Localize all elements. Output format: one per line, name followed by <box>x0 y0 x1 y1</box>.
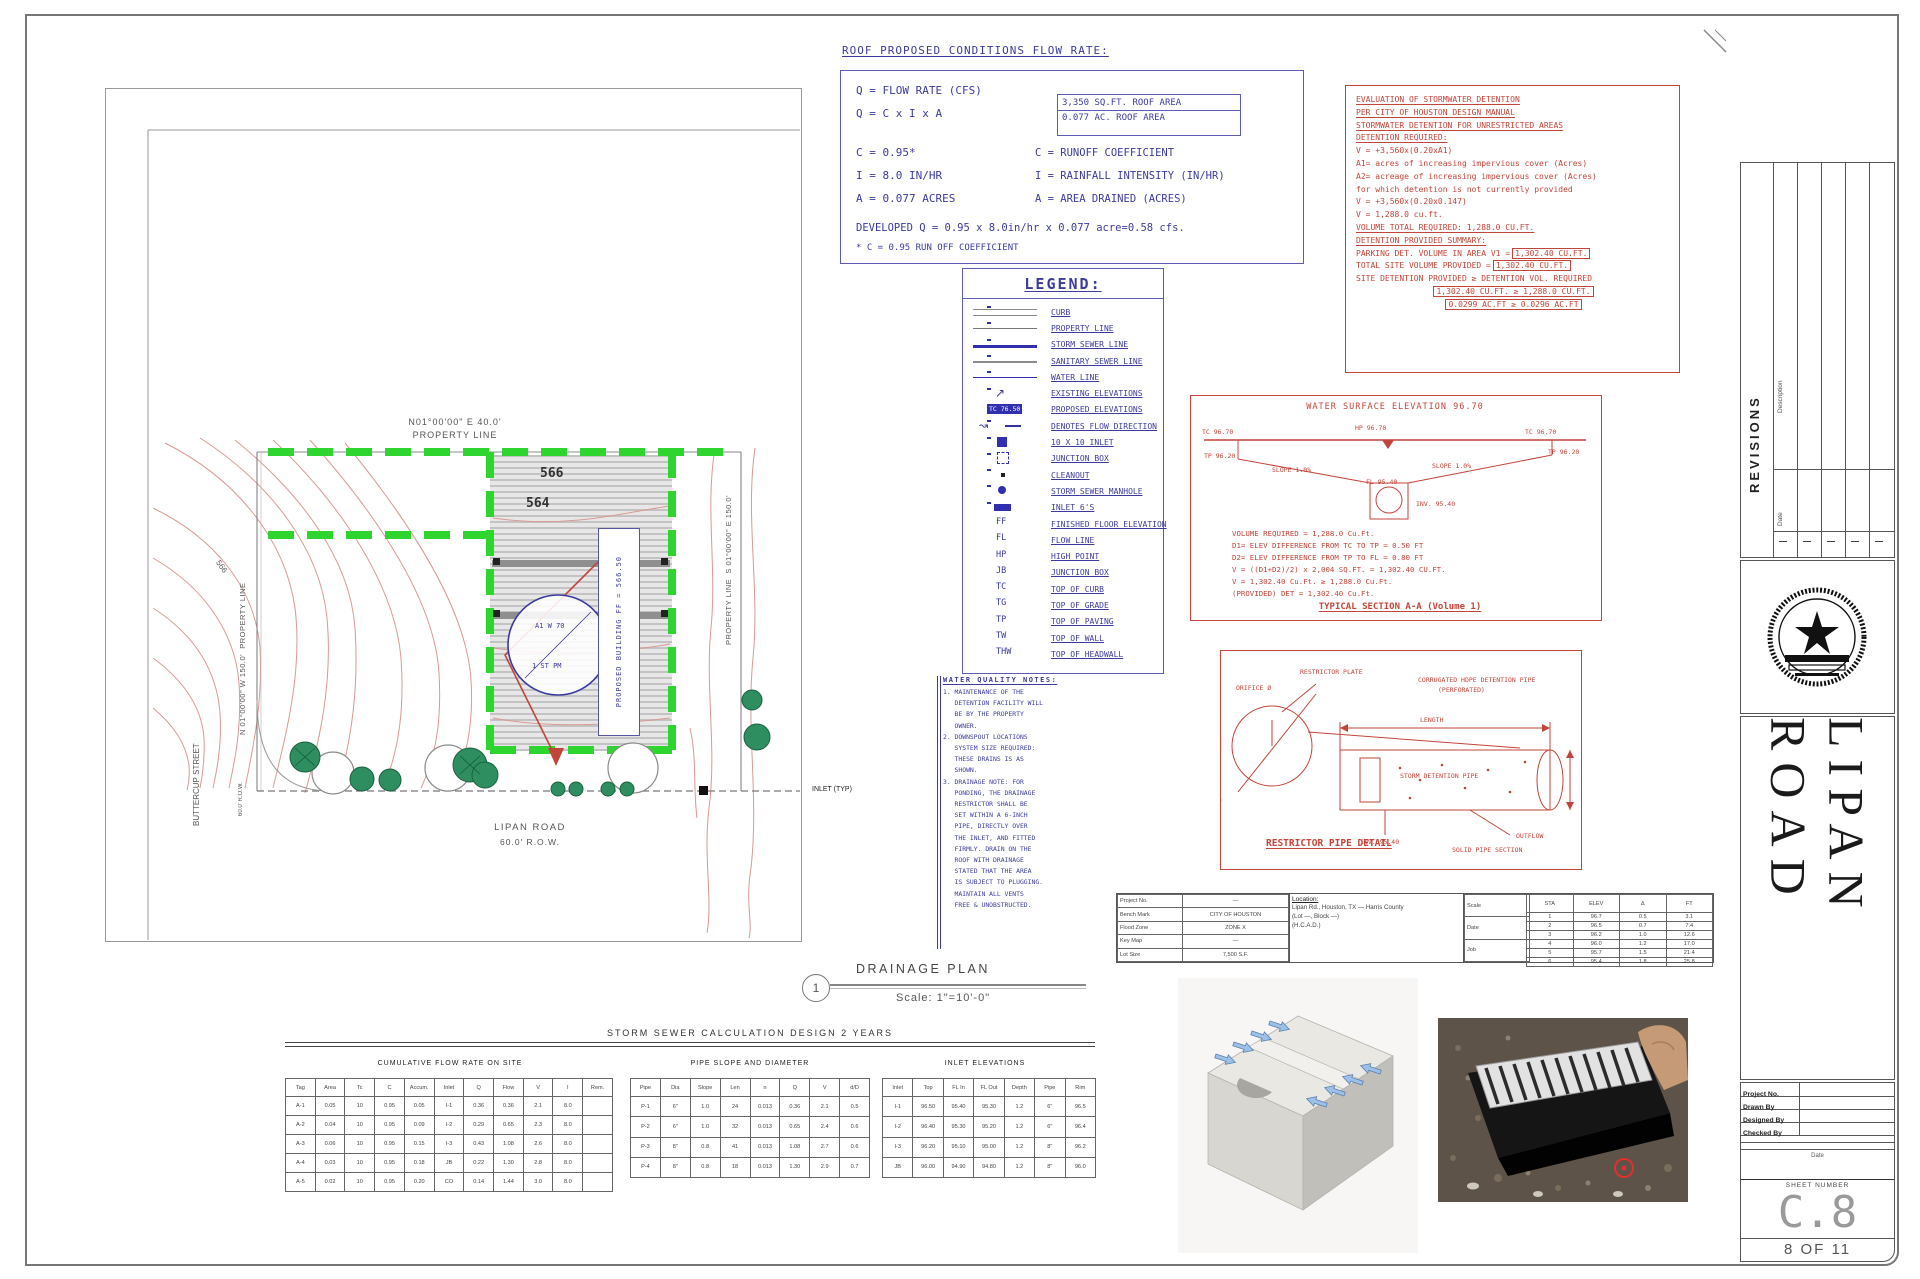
legend-symbol-icon: TP <box>965 615 1051 629</box>
inlet-elevations-table: InletTopFL InFL OutDepthPipeRimI-196.509… <box>882 1078 1096 1178</box>
legend-item-label: PROPERTY LINE <box>1051 324 1114 333</box>
titleblock-row: Designed By <box>1741 1109 1894 1123</box>
section-calc-line: D2= ELEV DIFFERENCE FROM TP TO FL = 0.80… <box>1232 552 1446 564</box>
legend-symbol-icon <box>965 436 1051 450</box>
callout-rule <box>830 984 1086 989</box>
legend-item: STORM SEWER MANHOLE <box>965 483 1159 499</box>
note-line: PIPE, DIRECTLY OVER <box>943 821 1105 832</box>
legend-item-label: EXISTING ELEVATIONS <box>1051 389 1143 398</box>
contour-label-564: 564 <box>526 496 549 511</box>
legend-item-label: CURB <box>1051 308 1070 317</box>
legend-item: WATER LINE <box>965 369 1159 385</box>
scale-date-block: Scale1"=10'Date—Job— <box>1464 894 1527 962</box>
note-line: RESTRICTOR SHALL BE <box>943 799 1105 810</box>
calc-header-rule <box>285 1042 1095 1047</box>
developed-q-line: DEVELOPED Q = 0.95 x 8.0in/hr x 0.077 ac… <box>856 222 1185 234</box>
flow-line: I = 8.0 IN/HR <box>856 169 942 182</box>
legend-item: STORM SEWER LINE <box>965 337 1159 353</box>
revisions-col-description: Description <box>1777 253 1784 413</box>
legend-item-label: FLOW LINE <box>1051 536 1094 545</box>
legend-item-label: 10 X 10 INLET <box>1051 438 1114 447</box>
legend-item-label: JUNCTION BOX <box>1051 454 1109 463</box>
callout-title: DRAINAGE PLAN <box>856 962 990 976</box>
detention-line: A2= acreage of increasing impervious cov… <box>1356 171 1669 184</box>
note-line: BE BY THE PROPERTY <box>943 709 1105 720</box>
legend-symbol-icon: TC <box>965 582 1051 596</box>
legend-item: CURB <box>965 304 1159 320</box>
circle-detail-text2: 1 ST PM <box>532 662 562 670</box>
legend-panel: LEGEND: CURB PROPERTY LINE STORM SEWER L… <box>962 268 1164 674</box>
roof-area-acres: 0.077 AC. ROOF AREA <box>1058 110 1240 123</box>
legend-item-label: PROPOSED ELEVATIONS <box>1051 405 1143 414</box>
detention-line: SITE DETENTION PROVIDED ≥ DETENTION VOL.… <box>1356 273 1669 286</box>
section-label-slope-left: SLOPE 1.0% <box>1272 466 1311 474</box>
restrictor-label-orifice: ORIFICE Ø <box>1236 684 1271 692</box>
lipan-road-label: LIPAN ROAD <box>430 822 630 833</box>
legend-symbol-icon <box>965 321 1051 335</box>
legend-item-label: CLEANOUT <box>1051 471 1090 480</box>
legend-item: 10 X 10 INLET <box>965 434 1159 450</box>
roof-area-box: 3,350 SQ.FT. ROOF AREA 0.077 AC. ROOF AR… <box>1057 94 1241 136</box>
legend-symbol-icon <box>965 419 1051 433</box>
title-block: Project No. Drawn By Designed By Checked… <box>1740 1082 1895 1262</box>
location-title: Location: <box>1292 896 1460 903</box>
revisions-col-date: Date <box>1777 478 1784 526</box>
top-property-line-label: PROPERTY LINE <box>330 430 580 440</box>
trench-drain-render <box>1178 978 1418 1253</box>
right-bearing-label: PROPERTY LINE S 01°00'00" E 150.0' <box>724 465 733 645</box>
section-calc-line: V = 1,302.40 Cu.Ft. ≥ 1,288.0 Cu.Ft. <box>1232 576 1446 588</box>
cumulative-flow-table: TagAreaTcCAccum.InletQFlowVIRem.A-10.051… <box>285 1078 613 1192</box>
flow-def: C = RUNOFF COEFFICIENT <box>1035 147 1174 159</box>
section-caption: TYPICAL SECTION A-A (Volume 1) <box>1260 602 1540 612</box>
page-count: 8 OF 11 <box>1741 1241 1894 1258</box>
notes-lines: 1. MAINTENANCE OF THE DETENTION FACILITY… <box>943 687 1105 911</box>
fold-mark-icon <box>1700 26 1730 54</box>
detention-line: A1= acres of increasing impervious cover… <box>1356 158 1669 171</box>
date-label: Date <box>1741 1153 1894 1159</box>
detention-line: V = +3,560x(0.20xA1) <box>1356 145 1669 158</box>
legend-item-label: HIGH POINT <box>1051 552 1099 561</box>
note-line: FREE & UNOBSTRUCTED. <box>943 900 1105 911</box>
channel-drain-photo-art <box>1438 1018 1688 1202</box>
note-line: DETENTION FACILITY WILL <box>943 698 1105 709</box>
inlet-typ-label: INLET (TYP) <box>812 786 852 793</box>
note-line: IS SUBJECT TO PLUGGING. <box>943 877 1105 888</box>
titleblock-row: Checked By <box>1741 1122 1894 1136</box>
legend-item-label: FINISHED FLOOR ELEVATION <box>1051 520 1167 529</box>
calc-header: STORM SEWER CALCULATION DESIGN 2 YEARS <box>560 1028 940 1038</box>
detention-line: 1,302.40 CU.FT. ≥ 1,288.0 CU.FT. <box>1356 286 1669 299</box>
notes-panel: WATER QUALITY NOTES: 1. MAINTENANCE OF T… <box>937 676 1105 949</box>
note-line: 1. MAINTENANCE OF THE <box>943 687 1105 698</box>
flow-line: A = 0.077 ACRES <box>856 192 955 205</box>
titleblock-row: Project No. <box>1741 1083 1894 1097</box>
note-line: THESE DRAINS IS AS <box>943 754 1105 765</box>
section-label-slope-right: SLOPE 1.0% <box>1432 462 1471 470</box>
roof-area-sqft: 3,350 SQ.FT. ROOF AREA <box>1058 95 1240 108</box>
detention-line: V = 1,288.0 cu.ft. <box>1356 209 1669 222</box>
restrictor-label-plate: RESTRICTOR PLATE <box>1300 668 1363 676</box>
legend-item: HP HIGH POINT <box>965 548 1159 564</box>
buttercup-street-label: BUTTERCUP STREET <box>192 740 202 826</box>
elevation-grid: STAELEVΔFT196.70.53.1296.50.77.4396.21.0… <box>1526 894 1713 962</box>
callout-number-bubble: 1 <box>802 974 830 1002</box>
restrictor-label-solid: SOLID PIPE SECTION <box>1452 846 1522 854</box>
flow-line: C = 0.95* <box>856 146 916 159</box>
project-data-table: Project No.—Bench MarkCITY OF HOUSTONFlo… <box>1116 893 1714 963</box>
section-calc-line: D1= ELEV DIFFERENCE FROM TC TO TP = 0.50… <box>1232 540 1446 552</box>
legend-item: JB JUNCTION BOX <box>965 565 1159 581</box>
detention-line: PARKING DET. VOLUME IN AREA V1 =1,302.40… <box>1356 248 1669 261</box>
legend-item: TW TOP OF WALL <box>965 630 1159 646</box>
road-title: LIPAN ROAD <box>1760 717 1876 1079</box>
revisions-block: REVISIONS Description Date <box>1740 162 1895 558</box>
left-bearing-label: N 01°00'00" W 150.0' PROPERTY LINE <box>238 555 247 735</box>
section-calc-lines: VOLUME REQUIRED = 1,288.0 Cu.Ft.D1= ELEV… <box>1232 528 1446 600</box>
street-row-label: 60.0' R.O.W. <box>238 756 244 816</box>
drawing-sheet: PROPOSED BUILDING FF = 566.50 N01°00'00"… <box>0 0 1920 1279</box>
legend-symbol-icon: TW <box>965 631 1051 645</box>
legend-symbol-icon <box>965 338 1051 352</box>
note-line: 3. DRAINAGE NOTE: FOR <box>943 777 1105 788</box>
section-label-inv: INV. 95.40 <box>1416 500 1455 508</box>
t3-title: INLET ELEVATIONS <box>905 1060 1065 1067</box>
restrictor-label-perforated: (PERFORATED) <box>1438 686 1485 694</box>
project-info-block: Project No.—Bench MarkCITY OF HOUSTONFlo… <box>1117 894 1290 962</box>
location-line: (Lot —, Block —) <box>1292 912 1460 921</box>
legend-item-label: SANITARY SEWER LINE <box>1051 357 1143 366</box>
note-line: ROOF WITH DRAINAGE <box>943 855 1105 866</box>
t1-title: CUMULATIVE FLOW RATE ON SITE <box>330 1060 570 1067</box>
channel-drain-photo <box>1438 1018 1688 1202</box>
building-label: PROPOSED BUILDING FF = 566.50 <box>615 556 623 707</box>
section-calc-line: (PROVIDED) DET = 1,302.40 Cu.Ft. <box>1232 588 1446 600</box>
legend-item: FF FINISHED FLOOR ELEVATION <box>965 516 1159 532</box>
note-line: FIRMLY. DRAIN ON THE <box>943 844 1105 855</box>
legend-item: INLET 6'S <box>965 500 1159 516</box>
legend-symbol-icon: FL <box>965 533 1051 547</box>
section-label-tp-right: TP 96.20 <box>1548 448 1579 456</box>
legend-item-label: STORM SEWER MANHOLE <box>1051 487 1143 496</box>
building-label-box: PROPOSED BUILDING FF = 566.50 <box>598 528 640 736</box>
legend-item-label: DENOTES FLOW DIRECTION <box>1051 422 1157 431</box>
note-line: SYSTEM SIZE REQUIRED: <box>943 743 1105 754</box>
legend-symbol-icon: HP <box>965 550 1051 564</box>
engineer-seal-icon <box>1741 561 1894 713</box>
legend-symbol-icon <box>965 501 1051 515</box>
detention-line: DETENTION REQUIRED: <box>1356 132 1669 145</box>
pipe-slope-table: PipeDiaSlopeLennQVd/DP-16"1.0240.0130.36… <box>630 1078 870 1178</box>
section-calc-line: VOLUME REQUIRED = 1,288.0 Cu.Ft. <box>1232 528 1446 540</box>
legend-item-label: TOP OF CURB <box>1051 585 1104 594</box>
detention-line: VOLUME TOTAL REQUIRED: 1,288.0 CU.FT. <box>1356 222 1669 235</box>
legend-symbol-icon: JB <box>965 566 1051 580</box>
legend-symbol-icon <box>965 305 1051 319</box>
detention-line: 0.0299 AC.FT ≥ 0.0296 AC.FT <box>1356 299 1669 312</box>
legend-item: CLEANOUT <box>965 467 1159 483</box>
trench-drain-render-photo <box>1178 978 1418 1253</box>
legend-item: TP TOP OF PAVING <box>965 614 1159 630</box>
flow-line: Q = FLOW RATE (CFS) <box>856 84 982 97</box>
section-label-fl: FL 95.40 <box>1366 478 1397 486</box>
section-label-hp: HP 96.70 <box>1355 424 1386 432</box>
legend-symbol-icon <box>965 468 1051 482</box>
legend-item: THW TOP OF HEADWALL <box>965 646 1159 662</box>
legend-item: TC TOP OF CURB <box>965 581 1159 597</box>
legend-item-label: TOP OF GRADE <box>1051 601 1109 610</box>
note-line: SET WITHIN A 6-INCH <box>943 810 1105 821</box>
legend-symbol-icon: THW <box>965 647 1051 661</box>
flow-rate-title: ROOF PROPOSED CONDITIONS FLOW RATE: <box>842 44 1202 57</box>
legend-title: LEGEND: <box>963 269 1163 293</box>
note-line: OWNER. <box>943 721 1105 732</box>
notes-title: WATER QUALITY NOTES: <box>943 676 1105 684</box>
sheet-number: C.8 <box>1741 1187 1894 1238</box>
flow-def: I = RAINFALL INTENSITY (IN/HR) <box>1035 170 1225 182</box>
legend-item: PROPERTY LINE <box>965 320 1159 336</box>
legend-item: SANITARY SEWER LINE <box>965 353 1159 369</box>
top-bearing-label: N01°00'00" E 40.0' <box>330 417 580 427</box>
legend-symbol-icon <box>965 354 1051 368</box>
legend-item-label: INLET 6'S <box>1051 503 1094 512</box>
section-label-tp-left: TP 96.20 <box>1204 452 1235 460</box>
titleblock-row: Drawn By <box>1741 1096 1894 1110</box>
legend-symbol-icon <box>965 452 1051 466</box>
legend-item: TC 76.50 PROPOSED ELEVATIONS <box>965 402 1159 418</box>
engineer-seal-box <box>1740 560 1895 714</box>
site-plan-drawing <box>105 88 800 940</box>
legend-symbol-icon: TG <box>965 598 1051 612</box>
restrictor-label-inside: STORM DETENTION PIPE <box>1400 772 1478 780</box>
circle-detail-text1: A1 W 70 <box>535 622 565 630</box>
restrictor-caption: RESTRICTOR PIPE DETAIL <box>1266 838 1392 849</box>
legend-items: CURB PROPERTY LINE STORM SEWER LINE SANI… <box>963 299 1163 663</box>
t2-title: PIPE SLOPE AND DIAMETER <box>660 1060 840 1067</box>
detention-line: PER CITY OF HOUSTON DESIGN MANUAL <box>1356 107 1669 120</box>
legend-item-label: WATER LINE <box>1051 373 1099 382</box>
lipan-road-row-label: 60.0' R.O.W. <box>430 837 630 847</box>
location-line: (H.C.A.D.) <box>1292 921 1460 930</box>
contour-label-566: 566 <box>540 466 563 481</box>
legend-item-label: TOP OF HEADWALL <box>1051 650 1123 659</box>
restrictor-label-pipe: CORRUGATED HDPE DETENTION PIPE <box>1418 676 1535 684</box>
flow-def: A = AREA DRAINED (ACRES) <box>1035 193 1187 205</box>
legend-item: DENOTES FLOW DIRECTION <box>965 418 1159 434</box>
location-block: Location: Lipan Rd., Houston, TX — Harri… <box>1289 894 1464 962</box>
note-line: MAINTAIN ALL VENTS <box>943 889 1105 900</box>
revisions-label: REVISIONS <box>1747 223 1762 493</box>
legend-symbol-icon <box>965 387 1051 401</box>
legend-item: EXISTING ELEVATIONS <box>965 385 1159 401</box>
location-line: Lipan Rd., Houston, TX — Harris County <box>1292 903 1460 912</box>
section-title: WATER SURFACE ELEVATION 96.70 <box>1240 402 1550 412</box>
restrictor-label-length: LENGTH <box>1420 716 1443 724</box>
legend-symbol-icon: FF <box>965 517 1051 531</box>
section-label-tc-left: TC 96.70 <box>1202 428 1233 436</box>
note-line: 2. DOWNSPOUT LOCATIONS <box>943 732 1105 743</box>
legend-item: JUNCTION BOX <box>965 451 1159 467</box>
drainage-plan-callout: 1 DRAINAGE PLAN Scale: 1"=10'-0" <box>800 960 1100 1015</box>
detention-line: EVALUATION OF STORMWATER DETENTION <box>1356 94 1669 107</box>
detention-line: for which detention is not currently pro… <box>1356 184 1669 197</box>
legend-item-label: TOP OF PAVING <box>1051 617 1114 626</box>
legend-symbol-icon: TC 76.50 <box>965 403 1051 417</box>
detention-line: TOTAL SITE VOLUME PROVIDED =1,302.40 CU.… <box>1356 260 1669 273</box>
legend-item: TG TOP OF GRADE <box>965 597 1159 613</box>
note-line: STATED THAT THE AREA <box>943 866 1105 877</box>
legend-item-label: JUNCTION BOX <box>1051 568 1109 577</box>
note-line: THE INLET, AND FITTED <box>943 833 1105 844</box>
legend-symbol-icon <box>965 370 1051 384</box>
restrictor-label-outflow: OUTFLOW <box>1516 832 1543 840</box>
detention-line: STORMWATER DETENTION FOR UNRESTRICTED AR… <box>1356 120 1669 133</box>
runoff-footnote: * C = 0.95 RUN OFF COEFFICIENT <box>856 243 1019 253</box>
legend-item-label: STORM SEWER LINE <box>1051 340 1128 349</box>
section-calc-line: V = ((D1+D2)/2) x 2,004 SQ.FT. = 1,302.4… <box>1232 564 1446 576</box>
flow-line: Q = C x I x A <box>856 107 942 120</box>
note-line: SHOWN. <box>943 765 1105 776</box>
detention-line: V = +3,560x(0.20x0.147) <box>1356 196 1669 209</box>
legend-item: FL FLOW LINE <box>965 532 1159 548</box>
legend-symbol-icon <box>965 484 1051 498</box>
note-line: PONDING, THE DRAINAGE <box>943 788 1105 799</box>
legend-item-label: TOP OF WALL <box>1051 634 1104 643</box>
road-title-box: LIPAN ROAD <box>1740 716 1895 1080</box>
callout-scale: Scale: 1"=10'-0" <box>896 992 990 1004</box>
detention-calc-panel: EVALUATION OF STORMWATER DETENTION PER C… <box>1345 85 1680 373</box>
detention-line: DETENTION PROVIDED SUMMARY: <box>1356 235 1669 248</box>
section-label-tc-right: TC 96.70 <box>1525 428 1556 436</box>
